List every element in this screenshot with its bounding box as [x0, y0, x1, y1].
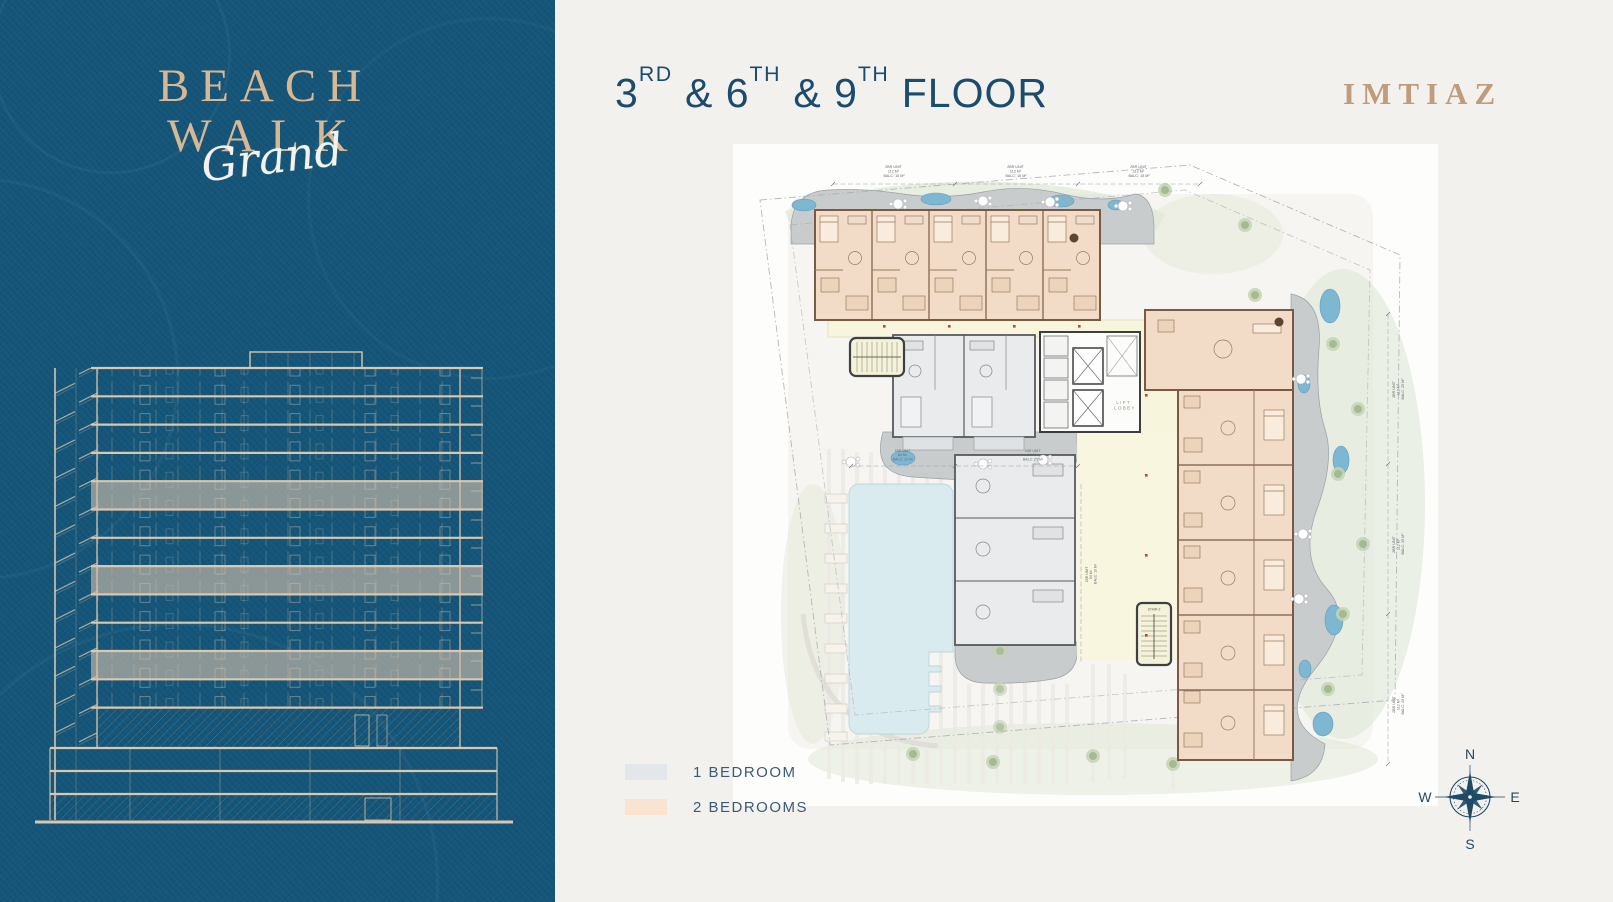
svg-text:2BR UNIT 112 M²: 2BR UNIT 112 M² BALC: 25 M²	[1392, 693, 1405, 715]
floor-title-text: & 9	[781, 70, 858, 116]
elevation-podium	[50, 708, 497, 820]
floor-title-text: & 6	[673, 70, 750, 116]
compass-north-label: N	[1465, 746, 1475, 762]
legend-item-1br: 1 BEDROOM	[625, 764, 808, 780]
stair-label: STAIR-2	[1148, 608, 1161, 612]
strip-centre-1br	[955, 455, 1075, 645]
legend-label-2br: 2 BEDROOMS	[693, 799, 808, 816]
left-brand-panel: BEACH WALK Grand	[0, 0, 555, 902]
svg-text:2BR UNIT 112 M²: 2BR UNIT 112 M² BALC: 15 M²	[1128, 165, 1150, 178]
compass-petals	[1444, 771, 1496, 823]
elevation-stair-core	[55, 368, 97, 820]
planter	[1275, 318, 1284, 327]
floor-title-text: 3	[615, 70, 639, 116]
brochure-page: { "brand": { "name_line1": "BEACH", "nam…	[0, 0, 1613, 902]
compass-rose: N S W E	[1405, 737, 1535, 857]
floor-title-text: FLOOR	[889, 70, 1048, 116]
core-lift-lobby: LIFT LOBBY	[1040, 332, 1140, 432]
legend-label-1br: 1 BEDROOM	[693, 764, 797, 781]
compass-west-label: W	[1418, 789, 1432, 805]
floor-title-superscript: TH	[858, 62, 889, 86]
stair-b: STAIR-2	[1137, 603, 1171, 665]
legend: 1 BEDROOM 2 BEDROOMS	[625, 764, 808, 834]
floor-title-superscript: RD	[639, 62, 673, 86]
building-elevation-drawing	[35, 350, 515, 855]
compass-south-label: S	[1465, 836, 1474, 852]
svg-text:2BR UNIT 112 M²: 2BR UNIT 112 M² BALC: 15 M²	[1005, 165, 1027, 178]
compass-east-label: E	[1510, 789, 1519, 805]
floor-title: 3RD & 6TH & 9TH FLOOR	[615, 70, 1048, 117]
svg-text:2BR UNIT 112 M²: 2BR UNIT 112 M² BALC: 15 M²	[883, 165, 905, 178]
logo-line-beach: BEACH	[115, 62, 415, 111]
legend-swatch-1br	[625, 764, 667, 780]
planter	[1070, 234, 1079, 243]
legend-swatch-2br	[625, 799, 667, 815]
stair-a	[850, 338, 904, 376]
floor-plan-image: LIFT LOBBY	[733, 144, 1438, 806]
beachwalk-logo: BEACH WALK Grand	[115, 62, 415, 184]
block-left-1br	[893, 335, 1035, 450]
lift-lobby-label: LIFT LOBBY	[1114, 400, 1135, 411]
pool-loungers	[825, 494, 847, 741]
right-content-panel: 3RD & 6TH & 9TH FLOOR IMTIAZ	[555, 0, 1613, 902]
legend-item-2br: 2 BEDROOMS	[625, 799, 808, 815]
floor-plan-svg: LIFT LOBBY	[733, 144, 1438, 806]
wing-top-2br	[815, 210, 1100, 320]
imtiaz-logo: IMTIAZ	[1343, 76, 1502, 112]
floor-title-superscript: TH	[750, 62, 781, 86]
